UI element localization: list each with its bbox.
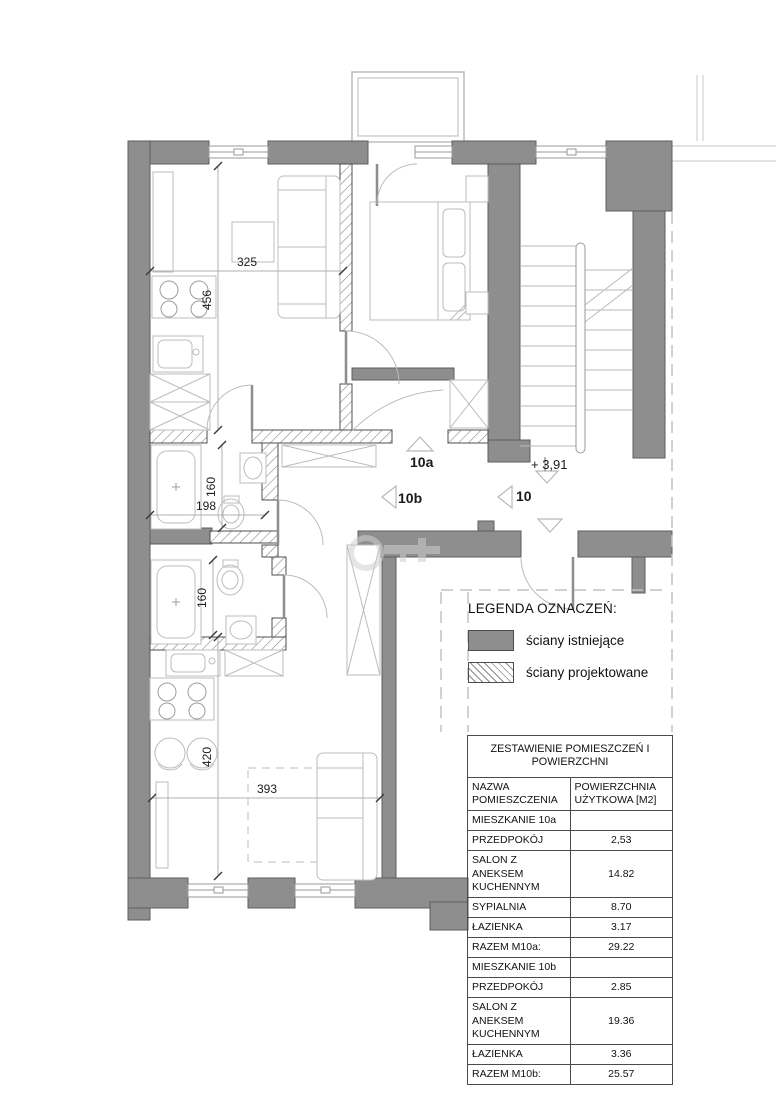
window-top-left xyxy=(209,146,268,158)
door-marker-10b xyxy=(382,486,396,508)
room-name-cell: MIESZKANIE 10a xyxy=(468,811,571,831)
door-bathroom-10a xyxy=(278,500,323,545)
window-bottom-left xyxy=(188,884,248,897)
bed xyxy=(370,202,470,320)
room-name-cell: SALON Z ANEKSEM KUCHENNYM xyxy=(468,851,571,897)
table-row: SALON Z ANEKSEM KUCHENNYM19.36 xyxy=(468,998,673,1044)
door-marker-10a xyxy=(407,437,433,451)
sink-10b xyxy=(226,616,256,644)
sink-10a xyxy=(240,453,266,483)
level-marker-triangle xyxy=(536,471,558,483)
stove-10b xyxy=(150,678,214,720)
window-stairwell xyxy=(536,146,606,158)
nightstand-top xyxy=(466,176,488,202)
balcony-door xyxy=(377,164,417,206)
window-bottom-right xyxy=(295,884,355,897)
label-apartment-10a: 10a xyxy=(410,454,434,470)
label-apartment-10b: 10b xyxy=(398,490,422,506)
door-apartment-10a xyxy=(352,390,443,431)
table-row: ŁAZIENKA3.36 xyxy=(468,1044,673,1064)
legend-label-projected: ściany projektowane xyxy=(526,665,648,680)
table-row: ŁAZIENKA3.17 xyxy=(468,917,673,937)
table-row: MIESZKANIE 10a xyxy=(468,811,673,831)
dim-label-325: 325 xyxy=(237,255,257,269)
label-entrance-10: 10 xyxy=(516,488,532,504)
window-bedroom xyxy=(415,146,452,158)
dim-label-393: 393 xyxy=(257,782,277,796)
room-name-cell: PRZEDPOKÓJ xyxy=(468,978,571,998)
wardrobe-przedpokoj-10a xyxy=(282,445,376,467)
existing-wall-swatch-icon xyxy=(468,630,514,651)
area-value-cell: 14.82 xyxy=(570,851,673,897)
floor-plan-page: 325 456 198 160 160 420 393 10a 10b 10 +… xyxy=(0,0,776,1099)
furniture-sypialnia xyxy=(370,176,488,428)
legend-label-existing: ściany istniejące xyxy=(526,633,624,648)
bathtub-10a xyxy=(151,445,201,529)
table-row: PRZEDPOKÓJ2,53 xyxy=(468,831,673,851)
kitchen-cabinets-x-10a xyxy=(150,374,210,430)
legend: LEGENDA OZNACZEŃ: ściany istniejące ścia… xyxy=(468,601,678,694)
table-title-row: ZESTAWIENIE POMIESZCZEŃ I POWIERZCHNI xyxy=(468,736,673,778)
room-name-cell: SYPIALNIA xyxy=(468,897,571,917)
door-salon-10a xyxy=(207,385,252,430)
sofa-10a xyxy=(278,176,340,318)
table-header-row: NAZWA POMIESZCZENIA POWIERZCHNIA UŻYTKOW… xyxy=(468,777,673,810)
column-header-area: POWIERZCHNIA UŻYTKOWA [M2] xyxy=(570,777,673,810)
dim-label-456: 456 xyxy=(200,290,214,310)
area-value-cell: 3.17 xyxy=(570,917,673,937)
table-row: SYPIALNIA8.70 xyxy=(468,897,673,917)
legend-title: LEGENDA OZNACZEŃ: xyxy=(468,601,678,616)
room-name-cell: RAZEM M10b: xyxy=(468,1064,571,1084)
sideboard xyxy=(156,782,168,868)
room-name-cell: ŁAZIENKA xyxy=(468,917,571,937)
dim-label-420: 420 xyxy=(200,747,214,767)
column-header-name: NAZWA POMIESZCZENIA xyxy=(468,777,571,810)
room-name-cell: PRZEDPOKÓJ xyxy=(468,831,571,851)
area-value-cell: 19.36 xyxy=(570,998,673,1044)
sofa-10b xyxy=(317,753,377,880)
legend-item-projected-walls: ściany projektowane xyxy=(468,662,678,683)
room-area-table: ZESTAWIENIE POMIESZCZEŃ I POWIERZCHNI NA… xyxy=(467,735,673,1085)
area-value-cell: 29.22 xyxy=(570,938,673,958)
wardrobe-sypialnia xyxy=(450,380,488,428)
table-row: RAZEM M10b:25.57 xyxy=(468,1064,673,1084)
door-marker-10 xyxy=(498,486,512,508)
room-name-cell: ŁAZIENKA xyxy=(468,1044,571,1064)
kitchen-cabinets-x-10b xyxy=(225,650,283,676)
furniture-salon-10a xyxy=(150,172,340,430)
room-name-cell: SALON Z ANEKSEM KUCHENNYM xyxy=(468,998,571,1044)
balcony xyxy=(352,72,464,142)
table-row: MIESZKANIE 10b xyxy=(468,958,673,978)
bathtub-10b xyxy=(151,560,201,644)
nightstand-bottom xyxy=(466,292,488,314)
wardrobes-halls xyxy=(282,445,380,675)
kitchen-sink-10a xyxy=(153,336,203,372)
table-row: SALON Z ANEKSEM KUCHENNYM14.82 xyxy=(468,851,673,897)
area-value-cell: 8.70 xyxy=(570,897,673,917)
kitchen-sink-10b xyxy=(166,650,220,676)
stairs xyxy=(520,243,633,453)
table-row: RAZEM M10a:29.22 xyxy=(468,938,673,958)
dim-label-160-bottom: 160 xyxy=(195,588,209,608)
area-value-cell: 3.36 xyxy=(570,1044,673,1064)
dim-label-198: 198 xyxy=(196,499,216,513)
table-title: ZESTAWIENIE POMIESZCZEŃ I POWIERZCHNI xyxy=(468,736,673,778)
label-level-elevation: + 3,91 xyxy=(531,457,568,472)
table-row: PRZEDPOKÓJ2.85 xyxy=(468,978,673,998)
kitchen-cabinet-tall xyxy=(153,172,173,272)
neighbor-building-lines xyxy=(672,75,776,161)
door-marker-entry xyxy=(538,519,562,532)
area-value-cell: 25.57 xyxy=(570,1064,673,1084)
toilet-10b xyxy=(217,560,243,595)
furniture-salon-10b xyxy=(150,650,377,880)
area-value-cell: 2.85 xyxy=(570,978,673,998)
room-name-cell: RAZEM M10a: xyxy=(468,938,571,958)
legend-item-existing-walls: ściany istniejące xyxy=(468,630,678,651)
door-bathroom-10b xyxy=(284,575,327,618)
apartment-labels: 10a 10b 10 + 3,91 xyxy=(382,437,568,532)
room-name-cell: MIESZKANIE 10b xyxy=(468,958,571,978)
area-value-cell xyxy=(570,811,673,831)
projected-wall-swatch-icon xyxy=(468,662,514,683)
area-value-cell: 2,53 xyxy=(570,831,673,851)
dim-label-160-top: 160 xyxy=(204,477,218,497)
area-value-cell xyxy=(570,958,673,978)
